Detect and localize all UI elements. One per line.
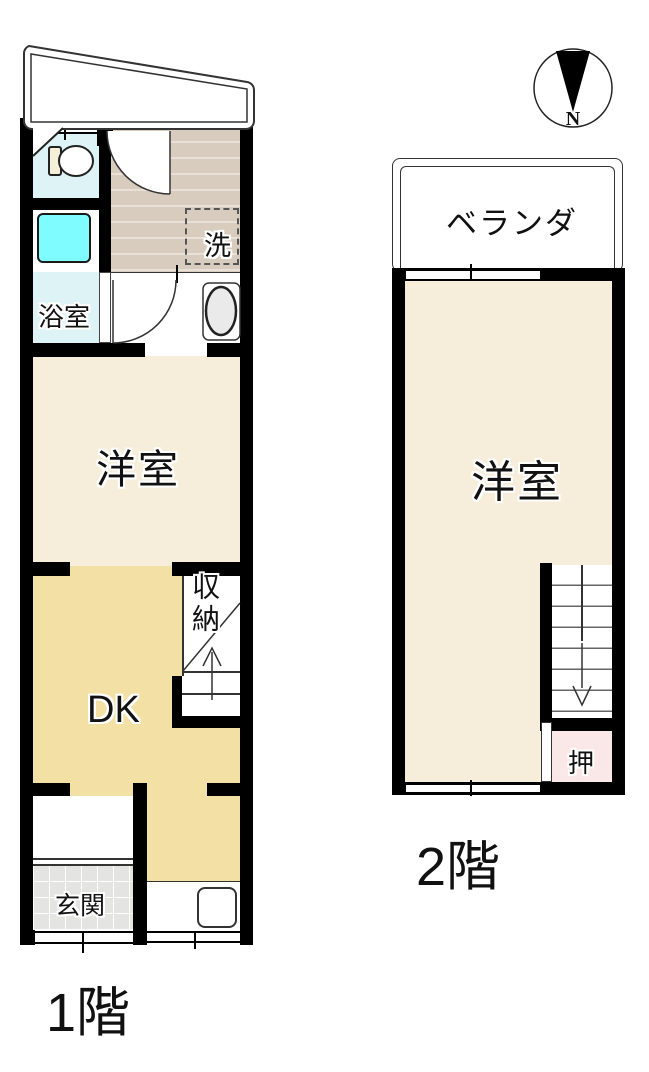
wall-dk-bottom-right <box>207 783 240 796</box>
bathroom-door <box>99 272 111 343</box>
western-room-2f-label: 洋室 <box>471 446 563 510</box>
eaves-overhang <box>24 46 254 129</box>
wall-bath-bottom-right <box>207 343 253 357</box>
bathtub <box>37 213 91 263</box>
window-2f-bottom-tick <box>470 780 472 796</box>
closet-door <box>541 722 552 782</box>
toilet-window <box>33 122 99 134</box>
stairs-1f-bottom-wall <box>172 716 240 728</box>
wall-2f-right <box>612 268 625 795</box>
kitchen-window-tick <box>194 931 196 949</box>
entrance-door <box>35 931 133 944</box>
floor2-label: 2階 <box>416 822 500 901</box>
wall-bath-bottom-left <box>20 343 145 357</box>
wall-2f-left <box>392 268 405 795</box>
closet-label: 押 <box>568 743 594 780</box>
stairs-2f-left-wall <box>540 563 552 718</box>
stairs-1f-tread <box>182 693 240 695</box>
toilet-room <box>33 131 99 198</box>
toilet-window-tick <box>64 112 66 140</box>
wall-entrance-vertical <box>133 783 147 945</box>
veranda-label: ベランダ <box>446 198 578 243</box>
stairs-2f-divider <box>581 565 583 641</box>
floor-plan-canvas: 浴室 洗 洋室 収納 DK 玄関 1階 ベランダ 洋室 押 2階 N <box>0 0 649 1072</box>
dk-label: DK <box>87 689 140 732</box>
bathroom-label: 浴室 <box>38 297 90 334</box>
western-room-1f-label: 洋室 <box>96 437 180 495</box>
kitchen-sink <box>197 887 237 928</box>
wall-toilet-bath <box>33 198 99 210</box>
wall-dk-bottom-left <box>28 783 70 796</box>
wall-1f-right <box>240 127 253 945</box>
compass-north-label: N <box>563 108 583 131</box>
washroom-opening-tick <box>176 265 178 283</box>
wall-1f-left <box>20 118 33 945</box>
floor1-label: 1階 <box>46 968 130 1047</box>
wall-toilet-wash-divider <box>99 146 111 272</box>
window-2f-top <box>406 269 540 281</box>
stairs-1f-left-wall <box>172 676 182 716</box>
stairs-1f-tread <box>182 671 240 673</box>
entrance-step <box>33 858 133 866</box>
hall <box>33 796 133 860</box>
washing-machine-label: 洗 <box>204 224 231 263</box>
wall-western-dk <box>28 562 70 576</box>
stairs-1f-left-line <box>182 576 184 676</box>
entrance-label: 玄関 <box>55 886 105 922</box>
entrance-door-tick <box>82 931 84 953</box>
wall-bottom-left-corner <box>20 930 35 945</box>
window-2f-bottom <box>406 783 540 794</box>
storage-label: 収納 <box>190 572 218 636</box>
wall-toilet-right-top <box>97 118 113 146</box>
wall-below-stairs-2f <box>540 718 625 731</box>
